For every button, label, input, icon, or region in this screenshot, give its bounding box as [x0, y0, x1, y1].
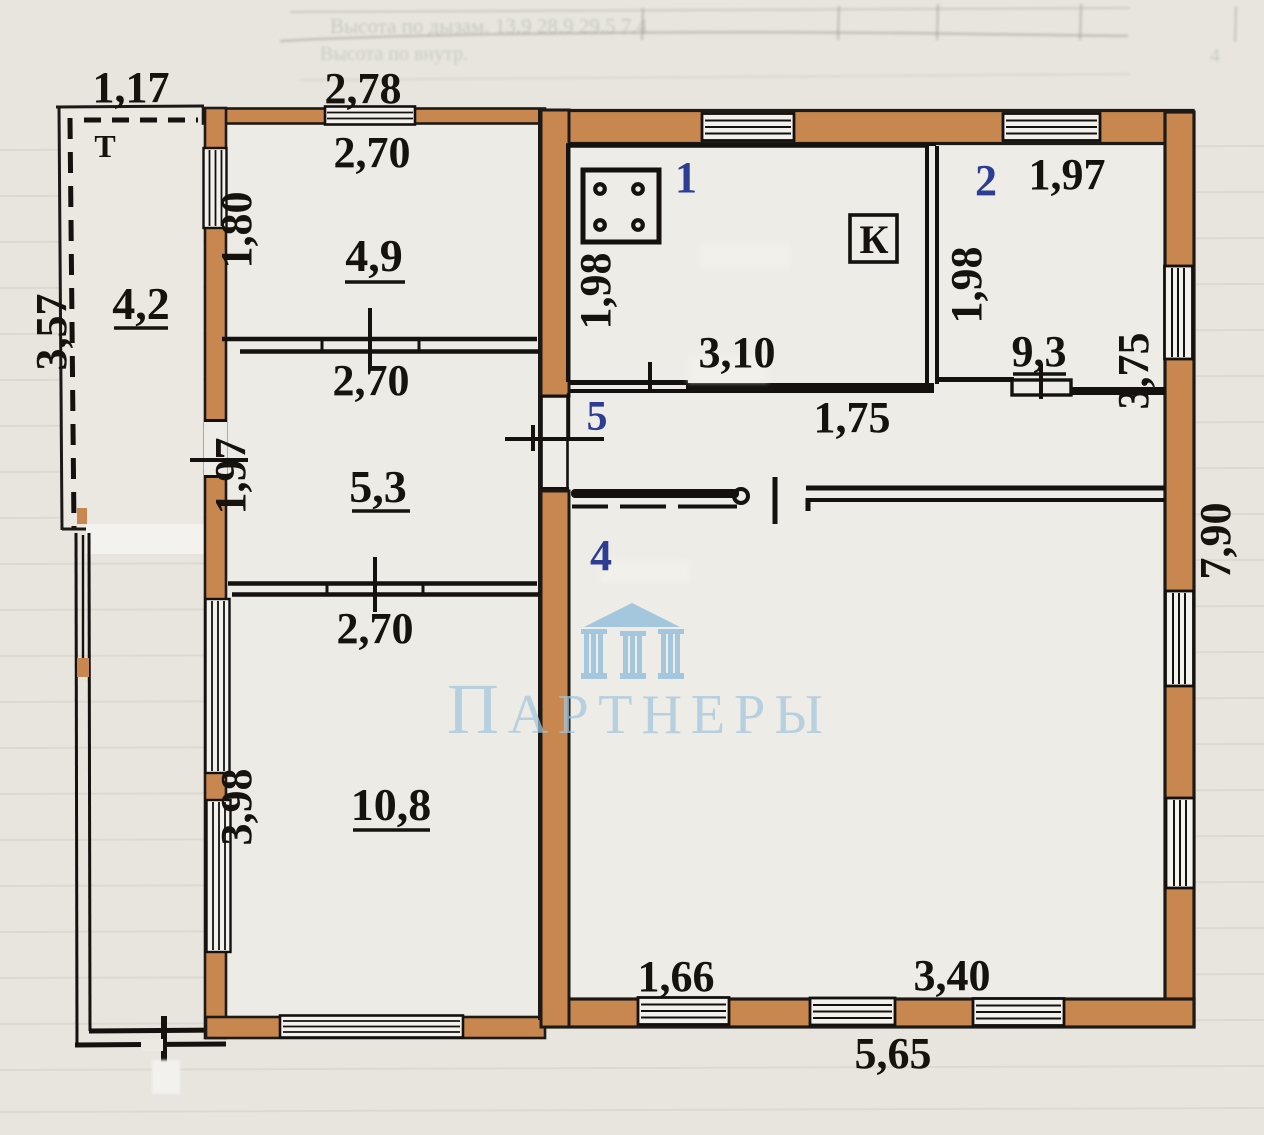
svg-text:1,17: 1,17: [93, 63, 170, 112]
svg-text:1,75: 1,75: [814, 393, 891, 442]
svg-text:1,97: 1,97: [1029, 150, 1106, 199]
svg-text:2,70: 2,70: [334, 128, 411, 177]
svg-text:4: 4: [590, 531, 612, 580]
svg-text:3,57: 3,57: [27, 294, 76, 371]
svg-text:4: 4: [1210, 45, 1220, 67]
svg-text:5: 5: [587, 394, 608, 440]
svg-text:4,9: 4,9: [345, 230, 403, 281]
svg-text:Высота по внутр.: Высота по внутр.: [320, 43, 468, 65]
svg-text:3,10: 3,10: [699, 328, 776, 377]
svg-text:9,3: 9,3: [1012, 327, 1067, 376]
svg-text:1: 1: [675, 153, 697, 202]
svg-text:1,80: 1,80: [212, 192, 261, 269]
svg-text:1,97: 1,97: [206, 438, 255, 515]
svg-text:Т: Т: [94, 128, 115, 164]
svg-text:2,78: 2,78: [325, 64, 402, 113]
svg-text:К: К: [859, 217, 888, 262]
svg-text:2: 2: [975, 156, 997, 205]
svg-text:5,65: 5,65: [855, 1029, 932, 1078]
svg-text:1,66: 1,66: [638, 952, 715, 1001]
svg-text:10,8: 10,8: [351, 779, 432, 830]
svg-text:3,98: 3,98: [212, 769, 261, 846]
svg-text:3,75: 3,75: [1109, 333, 1158, 410]
svg-text:2,70: 2,70: [333, 356, 410, 405]
svg-text:4,2: 4,2: [112, 278, 170, 329]
svg-text:1,98: 1,98: [571, 253, 620, 330]
svg-text:3,40: 3,40: [914, 951, 991, 1000]
svg-text:7,90: 7,90: [1191, 503, 1240, 580]
svg-text:1,98: 1,98: [942, 247, 991, 324]
svg-text:2,70: 2,70: [337, 604, 414, 653]
svg-text:5,3: 5,3: [349, 461, 407, 512]
